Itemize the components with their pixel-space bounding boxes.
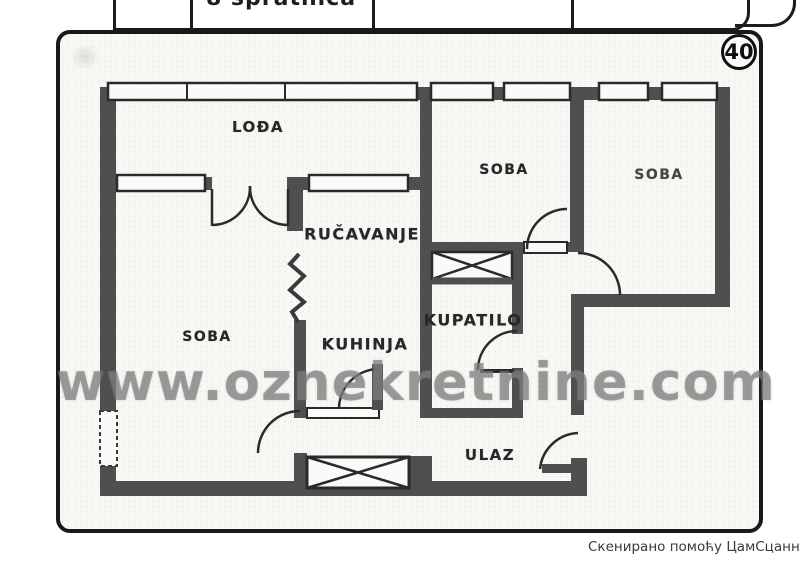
room-label-entrance: ULAZ — [465, 446, 515, 464]
room-label-soba-left: SOBA — [182, 329, 232, 345]
scan-page-frame — [56, 30, 763, 533]
room-label-soba-right: SOBA — [634, 167, 684, 183]
table-divider — [571, 0, 574, 28]
scan-smudge-artifact — [68, 42, 102, 72]
cropped-text-fragment: 8 spratnica — [196, 0, 366, 13]
plan-number-badge: 40 — [721, 34, 757, 70]
outer-table-corner — [735, 0, 796, 27]
plan-number: 40 — [724, 40, 753, 64]
scanner-credit: Скенирано помоћу ЦамСцаннер-а — [588, 539, 800, 555]
room-label-loggia: LOĐA — [232, 118, 284, 136]
table-divider — [190, 0, 193, 28]
room-label-dining: RUČAVANJE — [304, 225, 420, 244]
room-label-bathroom: KUPATILO — [424, 311, 523, 330]
table-divider — [372, 0, 375, 28]
watermark-text: www.oznekretnine.com — [56, 352, 776, 413]
room-label-soba-top: SOBA — [479, 162, 529, 178]
room-label-kitchen: KUHINJA — [322, 335, 409, 354]
